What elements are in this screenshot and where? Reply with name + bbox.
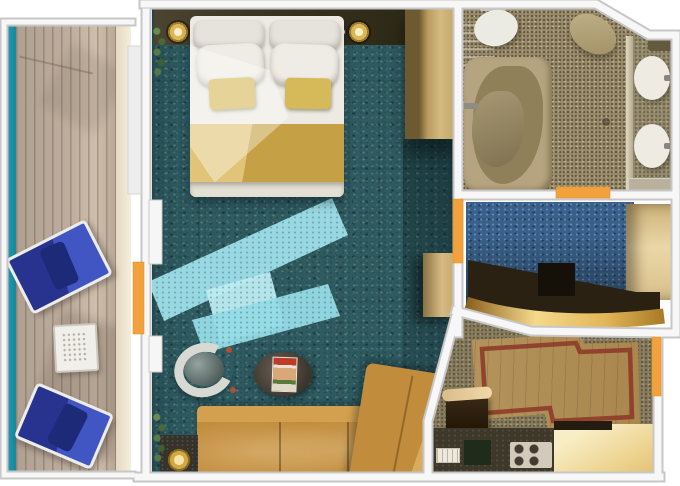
sink-faucet <box>664 143 676 149</box>
tissue-box <box>436 448 460 463</box>
tub-chair <box>174 343 234 397</box>
balcony-side-table <box>53 323 99 373</box>
balcony-door-marker <box>133 262 144 334</box>
counter-edge <box>554 421 612 430</box>
sink <box>634 56 670 100</box>
magazine <box>271 357 297 393</box>
bedside-lamp <box>347 20 371 44</box>
lounge-chair-cushion <box>46 402 89 453</box>
floor-lamp <box>165 446 193 474</box>
console-table <box>446 396 488 430</box>
dressing-area <box>458 196 680 336</box>
lounge-chair-cushion <box>39 240 80 291</box>
gold-counter <box>554 424 660 478</box>
floorplan <box>0 0 680 486</box>
console-top <box>442 386 493 401</box>
coffee-set <box>510 442 552 468</box>
shelf-fixture <box>648 38 676 51</box>
vanity-basin <box>562 5 624 62</box>
mesh-table-top <box>61 331 89 362</box>
double-bed <box>190 16 344 197</box>
bathtub-faucet <box>462 103 478 109</box>
plant <box>152 25 168 77</box>
sofa-seam <box>279 422 281 478</box>
chair-foot <box>226 347 232 353</box>
wardrobe <box>405 9 455 139</box>
sofa-seam <box>391 376 414 478</box>
bed-fold <box>190 182 344 197</box>
vanity-desk <box>458 196 680 336</box>
bathtub <box>464 57 552 193</box>
tub-chair-shell <box>167 335 241 405</box>
shelf <box>628 178 680 194</box>
plant <box>152 411 168 463</box>
tray <box>464 440 491 465</box>
entry-hall <box>424 312 660 478</box>
desk-stool <box>538 263 575 296</box>
sofa-seam <box>347 422 349 478</box>
bathroom <box>458 2 680 198</box>
balcony <box>4 24 131 476</box>
chair-foot <box>230 387 236 393</box>
divider-wall <box>626 36 633 194</box>
curtain-strip <box>116 24 131 476</box>
sea-stripe <box>4 24 16 476</box>
bedside-lamp <box>166 20 190 44</box>
sink-faucet <box>664 75 676 81</box>
accent-pillow <box>285 78 332 110</box>
cabinet <box>423 253 457 317</box>
coffee-table <box>254 352 312 396</box>
sink <box>634 124 670 168</box>
floor-drain <box>602 118 610 126</box>
main-cabin <box>152 9 458 478</box>
